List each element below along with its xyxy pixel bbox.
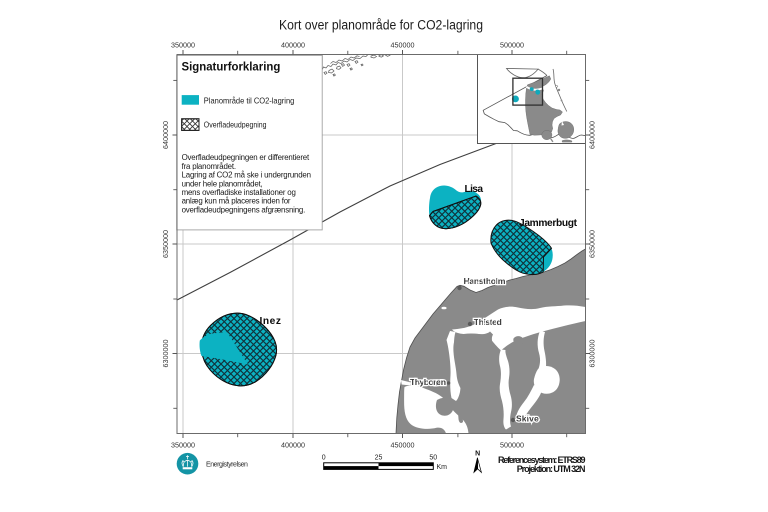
svg-text:under hele planområdet,: under hele planområdet, bbox=[182, 179, 263, 188]
svg-text:anlæg kun må placeres inden fo: anlæg kun må placeres inden for bbox=[182, 197, 291, 206]
svg-text:6300000: 6300000 bbox=[588, 340, 597, 368]
svg-text:500000: 500000 bbox=[500, 41, 524, 50]
svg-text:50: 50 bbox=[429, 455, 437, 462]
svg-text:Jammerbugt: Jammerbugt bbox=[519, 218, 578, 229]
svg-text:350000: 350000 bbox=[171, 441, 195, 450]
svg-text:Overfladeudpegning: Overfladeudpegning bbox=[204, 120, 267, 130]
svg-text:400000: 400000 bbox=[281, 441, 305, 450]
svg-text:6300000: 6300000 bbox=[161, 340, 170, 368]
svg-text:Lagring af CO2 må ske i underg: Lagring af CO2 må ske i undergrunden bbox=[182, 171, 311, 180]
svg-text:450000: 450000 bbox=[391, 41, 415, 50]
svg-text:overfladeudpegningens afgrænsn: overfladeudpegningens afgrænsning. bbox=[182, 205, 306, 214]
svg-text:Thyborøn: Thyborøn bbox=[410, 377, 446, 387]
svg-text:6350000: 6350000 bbox=[588, 230, 597, 258]
svg-text:25: 25 bbox=[375, 455, 383, 462]
svg-text:mens overfladiske installation: mens overfladiske installationer og bbox=[182, 188, 296, 197]
svg-text:N: N bbox=[475, 451, 480, 458]
svg-text:Thisted: Thisted bbox=[474, 317, 502, 327]
svg-text:450000: 450000 bbox=[391, 441, 415, 450]
svg-text:fra planområdet.: fra planområdet. bbox=[182, 162, 236, 171]
svg-text:500000: 500000 bbox=[500, 441, 524, 450]
svg-text:Kort over planområde for CO2-l: Kort over planområde for CO2-lagring bbox=[279, 18, 483, 33]
svg-text:Inez: Inez bbox=[260, 316, 282, 327]
svg-text:6400000: 6400000 bbox=[161, 121, 170, 149]
svg-text:Energistyrelsen: Energistyrelsen bbox=[206, 461, 248, 468]
svg-text:Km: Km bbox=[437, 464, 448, 471]
svg-text:Hanstholm: Hanstholm bbox=[464, 276, 506, 286]
svg-text:0: 0 bbox=[322, 455, 326, 462]
svg-text:6400000: 6400000 bbox=[588, 121, 597, 149]
svg-text:350000: 350000 bbox=[171, 41, 195, 50]
svg-text:6350000: 6350000 bbox=[161, 230, 170, 258]
svg-text:Skive: Skive bbox=[516, 414, 539, 424]
svg-text:400000: 400000 bbox=[281, 41, 305, 50]
svg-text:Overfladeudpegningen er differ: Overfladeudpegningen er differentieret bbox=[182, 153, 310, 162]
svg-text:Signaturforklaring: Signaturforklaring bbox=[182, 59, 281, 73]
svg-text:Lisa: Lisa bbox=[465, 184, 484, 195]
svg-text:Planområde til CO2-lagring: Planområde til CO2-lagring bbox=[204, 95, 295, 105]
svg-text:Projektion: UTM 32N: Projektion: UTM 32N bbox=[517, 464, 586, 474]
